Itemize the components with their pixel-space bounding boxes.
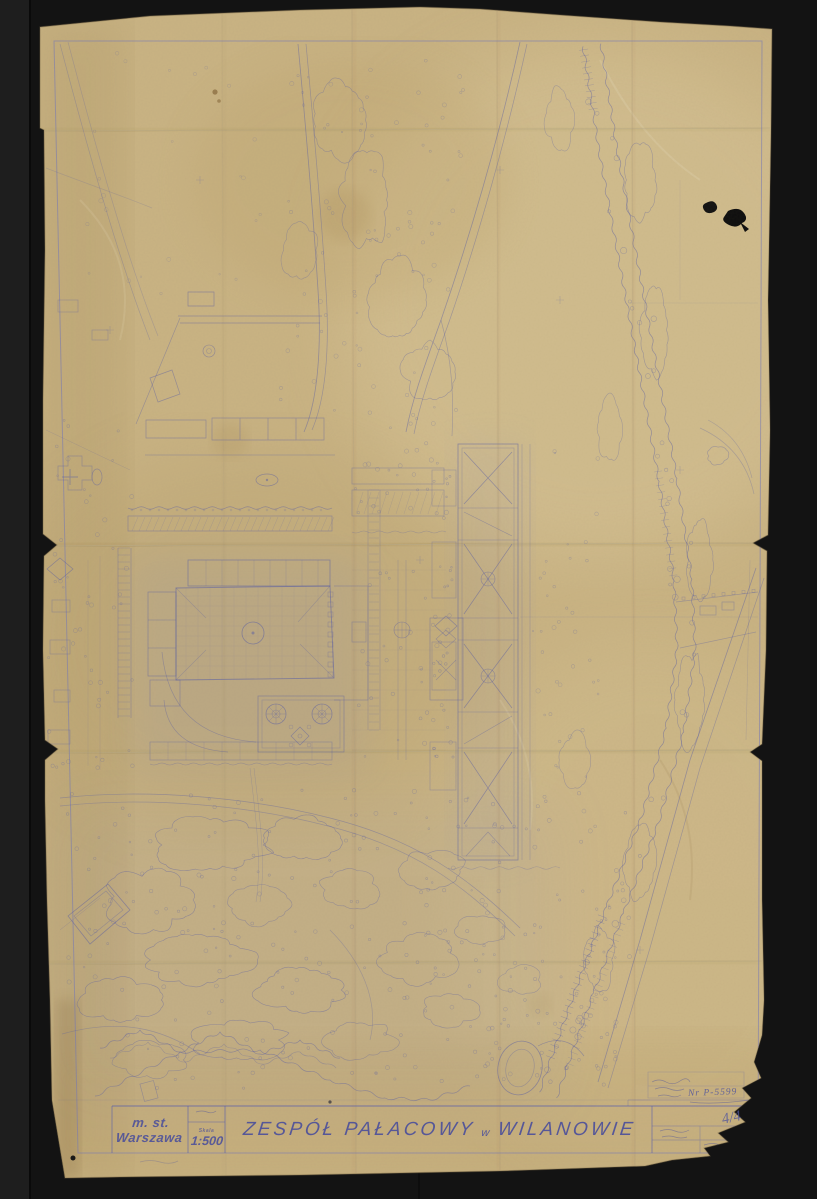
title-block-scale: Skala 1:500 bbox=[188, 1122, 225, 1153]
photographed-blueprint-scene: m. st. Warszawa Skala 1:500 ZESPÓŁ PAŁAC… bbox=[0, 0, 817, 1199]
city-line1: m. st. bbox=[132, 1116, 171, 1131]
city-line2: Warszawa bbox=[115, 1131, 183, 1146]
scale-caption: Skala bbox=[199, 1128, 215, 1134]
title-place: WILANOWIE bbox=[496, 1119, 637, 1141]
paper-grain bbox=[36, 0, 781, 1199]
title-main: ZESPÓŁ PAŁACOWY bbox=[242, 1119, 476, 1141]
scale-value: 1:500 bbox=[190, 1134, 223, 1148]
title-block-main-title: ZESPÓŁ PAŁACOWY w WILANOWIE bbox=[224, 1106, 655, 1153]
title-block-city: m. st. Warszawa bbox=[110, 1109, 191, 1153]
title-connector: w bbox=[481, 1127, 491, 1139]
inventory-number-annotation: Nr P-5599 bbox=[688, 1087, 738, 1099]
blueprint-sheet-svg bbox=[0, 0, 817, 1199]
